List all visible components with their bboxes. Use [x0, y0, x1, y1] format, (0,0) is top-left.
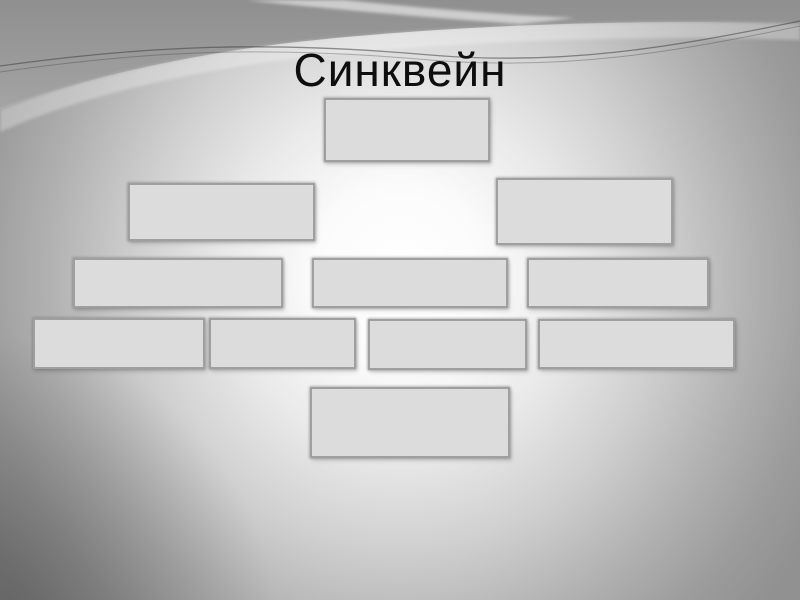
placeholder-box-row2-2[interactable] [496, 178, 673, 245]
slide-title: Синквейн [0, 44, 800, 96]
placeholder-box-row1-1[interactable] [324, 98, 490, 162]
placeholder-box-row4-3[interactable] [368, 319, 527, 370]
placeholder-box-row3-3[interactable] [527, 258, 709, 308]
placeholder-box-row5-1[interactable] [310, 387, 510, 458]
placeholder-box-row4-4[interactable] [538, 319, 735, 369]
placeholder-box-row4-1[interactable] [33, 318, 205, 369]
placeholder-box-row3-2[interactable] [312, 258, 508, 308]
placeholder-box-row2-1[interactable] [128, 183, 315, 241]
presentation-slide: Синквейн [0, 0, 800, 600]
placeholder-box-row3-1[interactable] [73, 258, 283, 308]
placeholder-box-row4-2[interactable] [209, 318, 356, 369]
